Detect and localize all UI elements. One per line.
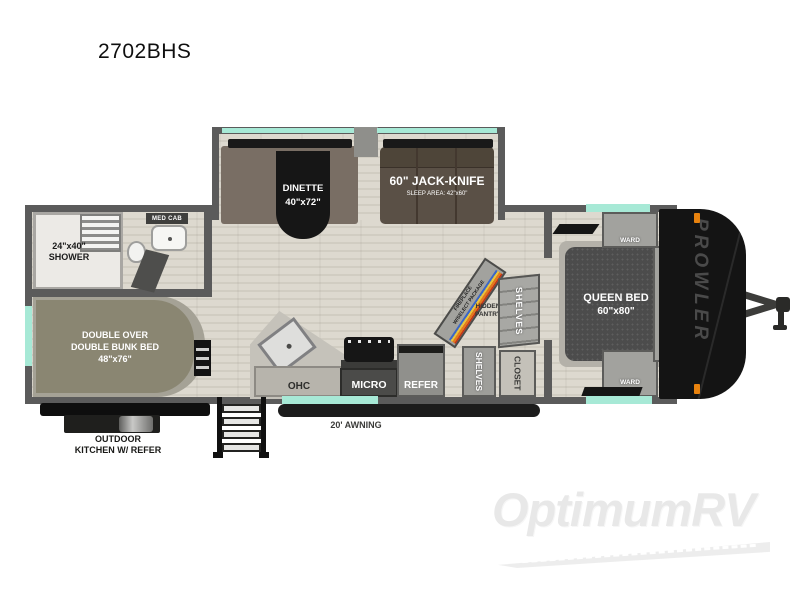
- bedside-shelf: [581, 387, 642, 396]
- tongue-jack: [778, 310, 784, 326]
- bunk-label-line2: DOUBLE BUNK BED: [71, 341, 159, 353]
- outdoor-kitchen-line2: KITCHEN W/ REFER: [75, 445, 162, 455]
- closet: CLOSET: [499, 350, 536, 397]
- shelves-upper-label: SHELVES: [514, 286, 524, 335]
- slideout-window-right: [377, 128, 497, 133]
- bunkroom-window: [25, 306, 32, 366]
- stove-knobs: [348, 340, 390, 343]
- jackknife-label: 60" JACK-KNIFE: [389, 174, 484, 188]
- entry-step: [222, 417, 261, 426]
- bunk-bed: DOUBLE OVER DOUBLE BUNK BED 48"x76": [36, 300, 194, 393]
- awning-bar: [278, 404, 540, 417]
- bathroom-wall: [204, 212, 212, 294]
- front-cap: PROWLER: [659, 209, 746, 399]
- slideout-divider-wall: [354, 127, 378, 157]
- entry-step: [222, 404, 261, 413]
- entry-door: [282, 396, 378, 404]
- ward-top-label: WARD: [620, 237, 640, 244]
- bedside-shelf: [552, 224, 599, 234]
- jackknife-sofa: 60" JACK-KNIFE SLEEP AREA: 42"x60": [380, 147, 494, 224]
- clearance-light: [694, 213, 700, 223]
- jackknife-sleep-area: SLEEP AREA: 42"x60": [407, 191, 468, 197]
- dinette-back-bar: [228, 139, 352, 148]
- stove-cooktop: [344, 337, 394, 362]
- pantry-shelves-lower: SHELVES: [462, 346, 496, 397]
- slideout-window-left: [222, 128, 354, 133]
- entry-steps-rail: [261, 397, 266, 457]
- queen-bed-size: 60"x80": [597, 306, 634, 317]
- queen-bed-label: QUEEN BED: [583, 292, 648, 304]
- bathroom-wall: [32, 289, 212, 297]
- sofa-back-cushions: [380, 147, 494, 168]
- bedroom-wall: [544, 340, 552, 397]
- entry-step: [222, 443, 261, 452]
- tongue-jack-foot: [773, 325, 787, 330]
- pantry-shelves-upper: SHELVES: [498, 274, 540, 348]
- outdoor-kitchen-label: OUTDOOR KITCHEN W/ REFER: [56, 434, 180, 455]
- shower-size: 24"x40": [52, 241, 86, 251]
- dinette-size: 40"x72": [285, 197, 320, 208]
- shelves-lower-label: SHELVES: [474, 352, 484, 391]
- kitchen-ohc-cabinet: OHC: [254, 366, 344, 397]
- floorplan-canvas: 2702BHS DINETTE 40"x72" 60" JACK-KNIFE S…: [0, 0, 800, 600]
- micro-label: MICRO: [352, 379, 387, 391]
- hidden-pantry-line1: HIDDEN: [476, 303, 501, 310]
- floorplan-model-title: 2702BHS: [98, 40, 191, 64]
- faucet: [286, 343, 293, 350]
- clearance-light: [694, 384, 700, 394]
- refer-top-edge: [399, 346, 443, 353]
- bedroom-window-bottom: [586, 396, 652, 404]
- ohc-label: OHC: [288, 381, 310, 392]
- brand-logo-text: PROWLER: [689, 218, 711, 390]
- outdoor-kitchen-refer: [119, 416, 153, 432]
- dinette-table: DINETTE 40"x72": [276, 151, 330, 239]
- awning-label: 20' AWNING: [311, 420, 401, 430]
- bathroom-sink: [151, 225, 187, 251]
- dinette-label: DINETTE: [283, 183, 324, 194]
- med-cab-label: MED CAB: [146, 213, 188, 224]
- watermark-brand-text: OptimumRV: [492, 486, 755, 534]
- bedroom-wall: [544, 212, 552, 258]
- entry-steps-foot: [213, 452, 223, 458]
- wardrobe-top: WARD: [602, 212, 658, 248]
- entry-steps-foot: [259, 452, 269, 458]
- outdoor-kitchen-line1: OUTDOOR: [95, 434, 141, 444]
- sofa-back-bar: [383, 139, 493, 148]
- shower-label: 24"x40" SHOWER: [35, 241, 103, 263]
- ward-bottom-label: WARD: [620, 379, 640, 386]
- dealer-watermark: OptimumRV: [492, 486, 792, 576]
- sink-drain: [168, 237, 172, 241]
- refer-label: REFER: [404, 380, 438, 391]
- bedroom-window-top: [586, 204, 650, 212]
- queen-bed: QUEEN BED 60"x80": [565, 247, 667, 361]
- bunk-label-line1: DOUBLE OVER: [82, 329, 148, 341]
- entry-step: [222, 430, 261, 439]
- bunk-ladder: [194, 340, 211, 376]
- bunk-size: 48"x76": [98, 353, 132, 365]
- refrigerator: REFER: [397, 344, 445, 397]
- microwave: MICRO: [340, 368, 398, 397]
- shower-word: SHOWER: [49, 252, 90, 262]
- closet-label: CLOSET: [513, 356, 523, 390]
